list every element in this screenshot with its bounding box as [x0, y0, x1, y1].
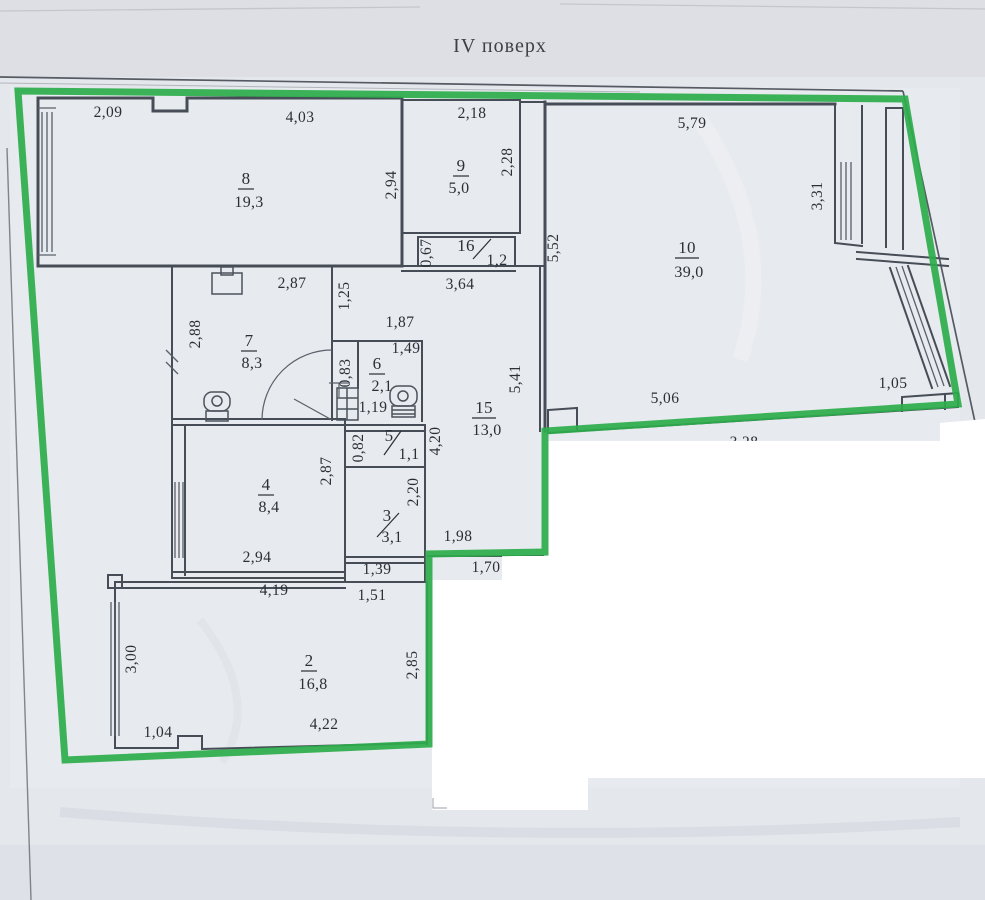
dimension-label: 2,85: [404, 651, 421, 680]
dimension-label: 1,04: [144, 724, 173, 741]
page-title: IV поверх: [453, 35, 547, 57]
room-area: 2,1: [372, 378, 393, 395]
room-area: 16,8: [298, 676, 327, 693]
dimension-label: 2,88: [187, 320, 204, 349]
room-area: 8,3: [242, 355, 263, 372]
dimension-label: 3,64: [446, 276, 475, 293]
dimension-label: 5,41: [507, 365, 524, 394]
room-area: 3,1: [382, 529, 403, 546]
dimension-label: 2,94: [243, 549, 272, 566]
dimension-label: 2,28: [499, 148, 516, 177]
dimension-label: 2,87: [278, 275, 307, 292]
dimension-label: 1,25: [336, 282, 353, 311]
dimension-label: 1,19: [359, 399, 388, 416]
dimension-label: 2,94: [383, 171, 400, 200]
room-number: 10: [678, 238, 696, 257]
dimension-label: 4,03: [286, 109, 315, 126]
dimension-label: 1,98: [444, 528, 473, 545]
dimension-label: 5,52: [545, 234, 562, 263]
dimension-label: 2,87: [318, 457, 335, 486]
dimension-label: 2,18: [458, 105, 487, 122]
dimension-label: 1,87: [386, 314, 415, 331]
dimension-label: 4,22: [310, 716, 339, 733]
room-area: 5,0: [449, 180, 470, 197]
dimension-label: 5,06: [651, 390, 680, 407]
room-area: 39,0: [674, 264, 703, 281]
dimension-label: 1,05: [879, 375, 908, 392]
dimension-label: 3,31: [809, 182, 826, 211]
room-number: 2: [305, 651, 314, 670]
room-area: 1,2: [487, 252, 508, 269]
dimension-label: 3,00: [123, 645, 140, 674]
dimension-label: 1,70: [472, 559, 501, 576]
room-number: 8: [242, 169, 251, 188]
dimension-label: 0,67: [418, 239, 435, 268]
room-number: 7: [245, 331, 254, 350]
room-area: 19,3: [234, 194, 263, 211]
room-number: 5: [385, 426, 394, 445]
room-number: 6: [373, 354, 382, 373]
room-area: 8,4: [259, 499, 280, 516]
scanned-floor-plan-page: 2,094,032,185,792,942,283,315,520,673,64…: [0, 0, 985, 900]
room-number: 9: [457, 156, 466, 175]
dimension-label: 4,20: [427, 427, 444, 456]
dimension-label: 1,51: [358, 587, 387, 604]
room-number: 15: [475, 398, 493, 417]
room-area: 1,1: [399, 446, 420, 463]
dimension-label: 5,79: [678, 115, 707, 132]
dimension-label: 0,82: [350, 434, 367, 463]
dimension-label: 1,49: [392, 340, 421, 357]
room-area: 13,0: [472, 422, 501, 439]
dimension-label: 0,83: [337, 359, 354, 388]
dimension-label: 2,20: [405, 478, 422, 507]
floor-plan-drawing: 2,094,032,185,792,942,283,315,520,673,64…: [0, 0, 985, 900]
dimension-label: 2,09: [94, 104, 123, 121]
dimension-label: 1,39: [363, 561, 392, 578]
room-number: 16: [457, 236, 475, 255]
dimension-label: 4,19: [260, 582, 289, 599]
room-number: 4: [262, 475, 271, 494]
